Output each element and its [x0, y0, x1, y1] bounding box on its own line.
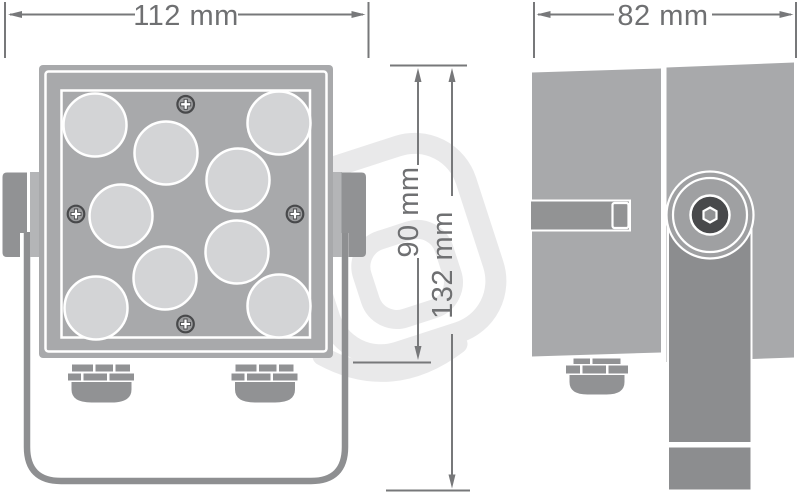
led-lens [134, 247, 197, 310]
screw-icon [287, 206, 304, 223]
led-lens [248, 275, 311, 338]
side-view [530, 63, 794, 491]
cable-gland-side [566, 359, 628, 395]
dimension-label-90mm: 90 mm [393, 166, 425, 257]
dimension-total-height: 132 mm [427, 68, 459, 489]
side-trunnion-arm [530, 201, 630, 231]
right-spacer [333, 172, 342, 257]
left-spacer [30, 172, 39, 257]
dimension-label-112mm: 112 mm [133, 0, 239, 32]
hex-socket-icon [704, 208, 717, 223]
led-lens [135, 122, 198, 185]
front-view [3, 65, 367, 481]
stirrup-bottom-edge [668, 447, 752, 491]
cable-gland-left [68, 365, 134, 403]
led-lens [90, 185, 153, 248]
led-lens [64, 94, 127, 157]
led-lens [65, 277, 128, 340]
pivot-knob [667, 172, 754, 259]
led-lens [207, 149, 270, 212]
cable-gland-right [232, 365, 298, 403]
dimension-front-width: 112 mm [5, 0, 369, 58]
dimension-label-132mm: 132 mm [427, 211, 459, 319]
screw-icon [68, 206, 85, 223]
drawing-canvas: 112 mm 82 mm 90 mm [0, 0, 800, 494]
led-lens [248, 92, 311, 155]
left-trunnion-tab [3, 173, 28, 258]
screw-icon [177, 96, 194, 113]
led-lens [206, 221, 269, 284]
screw-icon [177, 316, 194, 333]
dimension-drawing: 112 mm 82 mm 90 mm [0, 0, 800, 494]
dimension-side-depth: 82 mm [534, 0, 796, 58]
dimension-label-82mm: 82 mm [617, 0, 708, 32]
